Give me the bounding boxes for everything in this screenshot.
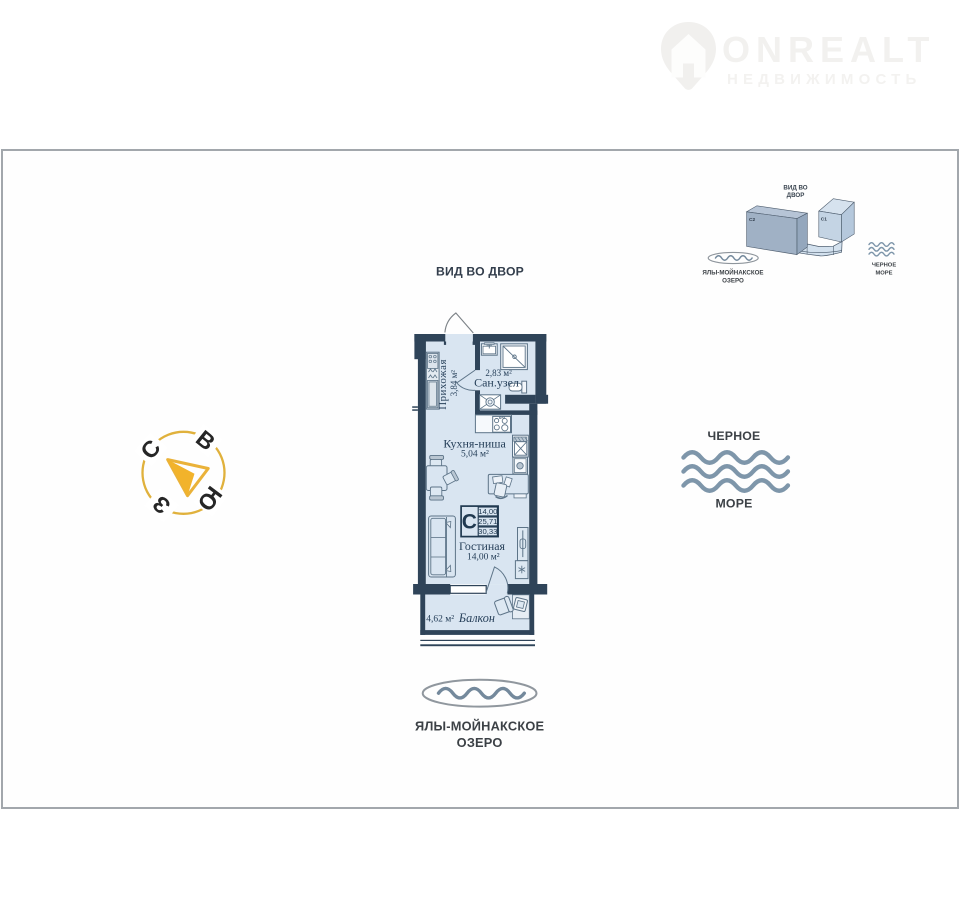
svg-text:3,84 м²: 3,84 м²	[449, 370, 459, 397]
svg-text:ЧЕРНОЕ: ЧЕРНОЕ	[872, 263, 897, 269]
svg-text:ЧЕРНОЕ: ЧЕРНОЕ	[708, 429, 761, 443]
svg-text:С: С	[462, 511, 477, 534]
svg-text:ОЗЕРО: ОЗЕРО	[457, 735, 503, 750]
svg-text:30,33: 30,33	[478, 527, 497, 536]
svg-text:Сан.узел: Сан.узел	[474, 376, 519, 390]
svg-text:ЯЛЫ-МОЙНАКСКОЕ: ЯЛЫ-МОЙНАКСКОЕ	[415, 719, 545, 734]
svg-text:С1: С1	[821, 217, 827, 223]
svg-text:ДВОР: ДВОР	[787, 192, 805, 199]
svg-text:5,04 м²: 5,04 м²	[461, 449, 489, 459]
svg-text:ВИД ВО ДВОР: ВИД ВО ДВОР	[436, 265, 524, 279]
svg-text:НЕДВИЖИМОСТЬ: НЕДВИЖИМОСТЬ	[727, 71, 921, 88]
svg-text:МОРЕ: МОРЕ	[715, 497, 752, 511]
svg-text:Прихожая: Прихожая	[437, 359, 449, 410]
svg-text:Балкон: Балкон	[458, 611, 495, 625]
svg-text:ОЗЕРО: ОЗЕРО	[722, 278, 744, 285]
svg-text:14,00: 14,00	[478, 507, 497, 516]
svg-text:С2: С2	[749, 217, 755, 223]
svg-text:14,00 м²: 14,00 м²	[467, 553, 500, 563]
svg-text:ЯЛЫ-МОЙНАКСКОЕ: ЯЛЫ-МОЙНАКСКОЕ	[702, 269, 763, 277]
svg-text:25,71: 25,71	[478, 517, 497, 526]
svg-text:ВИД ВО: ВИД ВО	[783, 184, 807, 191]
svg-text:ONREALT: ONREALT	[722, 29, 935, 70]
svg-text:Гостиная: Гостиная	[459, 539, 506, 553]
svg-text:4,62 м²: 4,62 м²	[426, 615, 454, 625]
svg-text:МОРЕ: МОРЕ	[875, 271, 892, 277]
